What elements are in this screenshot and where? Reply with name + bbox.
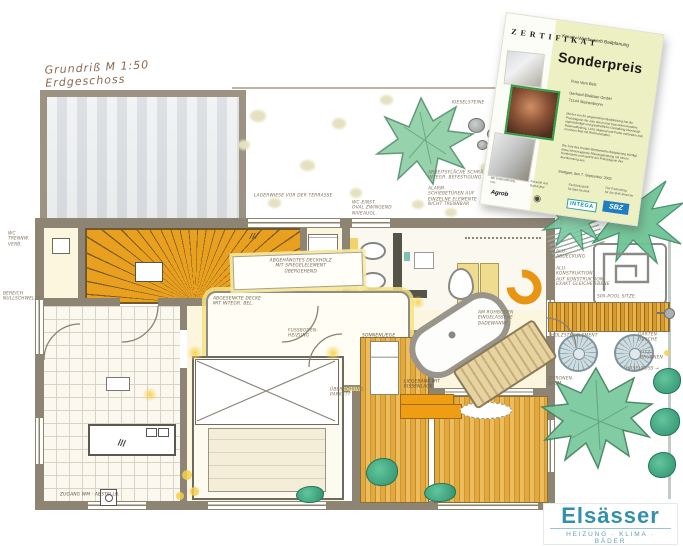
sink-bowl bbox=[146, 428, 157, 437]
pebble bbox=[468, 118, 485, 133]
scanned-floorplan-page: Grundriß M 1:50 Erdgeschoss bbox=[0, 0, 683, 546]
lawn-dot bbox=[445, 208, 457, 217]
light-glow bbox=[410, 296, 426, 309]
label-wanne: AM ROHBODEN EINGELASSENE BADEWANNE bbox=[478, 310, 534, 326]
stepping-stone bbox=[558, 334, 598, 372]
light-glow bbox=[186, 346, 204, 360]
photo-family-2 bbox=[488, 132, 537, 182]
label-garden2: WC-EINST. OVAL ZWINGEND NIVEAUGL. bbox=[352, 200, 420, 216]
bath-partition-v bbox=[393, 233, 402, 295]
label-brunnen: SITZ- BRUNNEN bbox=[640, 350, 683, 360]
brand-logo-block: Elsässer HEIZUNG · KLIMA · BÄDER bbox=[543, 503, 678, 545]
label-parkett: ÜBERHÖHUNG PARKETT bbox=[330, 387, 380, 397]
photo-portrait bbox=[504, 84, 560, 140]
teal-accent bbox=[404, 252, 410, 261]
label-alu2: ALU- KONSTRUKTION AUF KONSTRUKTION EXAKT… bbox=[556, 266, 624, 287]
stone-core bbox=[573, 348, 586, 360]
label-zitrone: ZITRONEN- BAUM bbox=[548, 376, 591, 386]
label-liegebank: LIEGEBANK MIT KISSENLAGE bbox=[404, 379, 460, 389]
window bbox=[248, 219, 340, 227]
walkway-knob-stem bbox=[657, 312, 665, 314]
flower-dot bbox=[176, 492, 184, 500]
hall-kitchen-tiles bbox=[44, 306, 180, 501]
bed-blanket bbox=[195, 359, 339, 425]
label-wc: WC TRENNW. VERB. bbox=[8, 231, 51, 247]
wall-basin bbox=[106, 377, 130, 391]
label-dusche: GARTEN- DUSCHE bbox=[638, 332, 681, 342]
label-ceiling2: ABGESENKTE DECKE MIT INTEGR. BEL. bbox=[213, 296, 306, 306]
bottom-plant bbox=[424, 483, 456, 502]
label-haselnuss: HASELNUSS → bbox=[626, 366, 676, 371]
label-garden1: LAGERWIESE VOR DER TERRASSE bbox=[254, 193, 366, 198]
label-zugang: ZUGANG WM · ABSTELLR. bbox=[60, 492, 153, 497]
label-sonnenliege: SONNENLIEGE bbox=[362, 333, 418, 338]
wall-entry bbox=[78, 228, 85, 305]
window bbox=[352, 219, 390, 227]
tree-garden-veins bbox=[570, 380, 628, 450]
circle-logo-icon: ◉ bbox=[533, 193, 542, 205]
photo-family-1 bbox=[504, 50, 545, 88]
terrace-area bbox=[40, 90, 246, 236]
wall-left bbox=[35, 218, 44, 510]
bidet bbox=[360, 272, 386, 290]
tree-veins bbox=[404, 112, 446, 164]
shower-curtain-line bbox=[465, 232, 541, 239]
lawn-dot bbox=[380, 95, 393, 105]
hedge-bush bbox=[650, 408, 680, 436]
lawn-dot bbox=[300, 160, 315, 171]
flower-dot bbox=[190, 487, 199, 496]
plan-title: Grundriß M 1:50 Erdgeschoss bbox=[44, 59, 150, 90]
window bbox=[547, 420, 554, 472]
wood-walkway bbox=[548, 302, 670, 332]
lawn-dot bbox=[268, 198, 281, 208]
tap-marks: /// bbox=[117, 437, 126, 448]
light-glow bbox=[142, 388, 158, 401]
certificate: Z E R T I F I K A T Kreativ-Wettbewerb B… bbox=[479, 12, 664, 226]
deck-plant bbox=[366, 458, 398, 486]
wall-hall-bed-a bbox=[180, 306, 187, 330]
lawn-dot bbox=[250, 110, 266, 122]
label-alu1: ALU- ABDECKUNG bbox=[556, 249, 606, 259]
window bbox=[208, 502, 326, 509]
window bbox=[36, 300, 43, 354]
toilet bbox=[360, 242, 386, 260]
lawn-dot bbox=[238, 140, 250, 150]
hedge-bush bbox=[653, 368, 681, 394]
brand-wordmark: Elsässer bbox=[544, 504, 677, 528]
lawn-dot bbox=[332, 118, 346, 129]
window bbox=[438, 502, 538, 509]
hedge-bush bbox=[648, 452, 676, 478]
label-ceiling1: ABGEHÄNGTES DECKHOLZ MIT SPIEGELELEMENT … bbox=[240, 258, 362, 274]
label-fussboden: FUSSBODEN- HEIZUNG bbox=[288, 328, 344, 338]
light-glow bbox=[324, 346, 342, 360]
window bbox=[88, 502, 146, 509]
window bbox=[36, 418, 43, 464]
flower-dot bbox=[182, 470, 192, 480]
bed-mattress bbox=[208, 428, 326, 492]
label-bereich: BEREICH NULLSCHWELLE bbox=[3, 291, 59, 301]
brand-tagline: HEIZUNG · KLIMA · BÄDER bbox=[550, 528, 671, 545]
walkway-knob bbox=[664, 308, 675, 319]
stair-landing bbox=[135, 262, 163, 282]
wall-hall-bed-b bbox=[180, 368, 187, 501]
shaft-box bbox=[52, 238, 70, 254]
label-holzsteg: HOLZSTEGELEMENT bbox=[551, 333, 619, 338]
label-spapool: SPA-POOL SITZE bbox=[597, 294, 665, 299]
mirror-box bbox=[414, 252, 434, 269]
label-schrank: /// bbox=[250, 232, 269, 240]
agrob-logo: Agrob bbox=[490, 190, 508, 198]
sink-bowl bbox=[158, 428, 169, 437]
bottom-plant bbox=[296, 486, 324, 503]
